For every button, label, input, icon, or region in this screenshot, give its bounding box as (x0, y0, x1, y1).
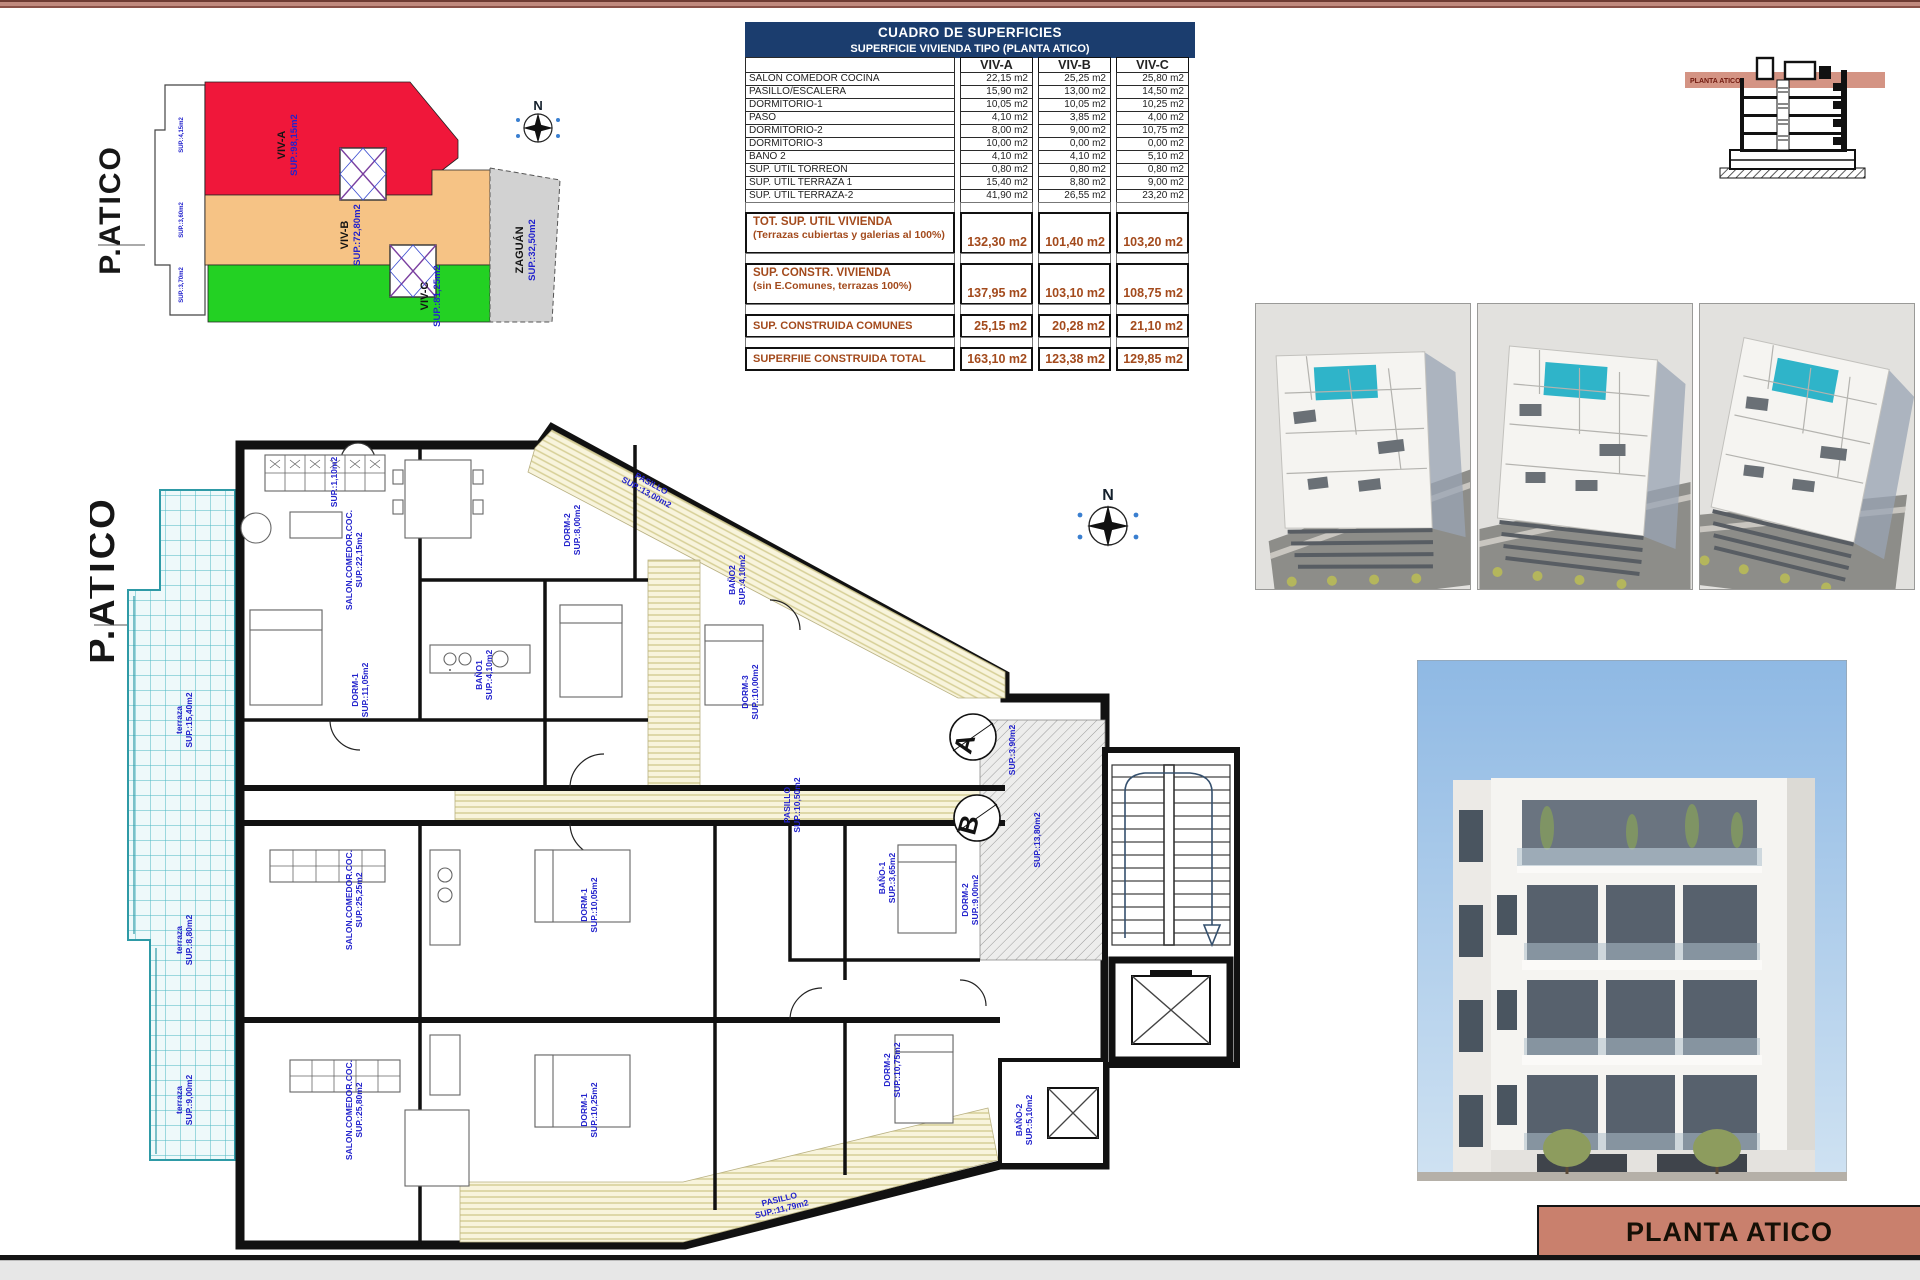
key-compass-icon: N (516, 98, 560, 143)
plan-compass-icon: N (1078, 487, 1139, 547)
table-row: SUP. ÚTIL TERRAZA 115,40 m28,80 m29,00 m… (745, 176, 1195, 190)
table-row: PASO4,10 m23,85 m24,00 m2 (745, 111, 1195, 125)
floorplan-title: P.ATICO (90, 496, 123, 663)
surface-table: CUADRO DE SUPERFICIES SUPERFICIE VIVIEND… (745, 22, 1195, 371)
svg-text:VIV-A: VIV-A (276, 131, 288, 160)
key-edge-label: SUP.:3,60m2 (179, 202, 185, 238)
key-plan-title: P.ATICO (94, 145, 127, 275)
key-edge-label: SUP.:3,70m2 (179, 267, 185, 303)
svg-text:SUP.:98,15m2: SUP.:98,15m2 (289, 114, 300, 176)
aerial-render-viv-c (1699, 303, 1915, 590)
title-block: PLANTA ATICO (1537, 1205, 1920, 1259)
table-row: SALON COMEDOR COCINA22,15 m225,25 m225,8… (745, 72, 1195, 86)
key-zone-viv-c (208, 265, 490, 322)
key-edge-label: SUP.:4,15m2 (179, 117, 185, 153)
key-elevator-1 (340, 148, 386, 200)
svg-text:ZAGUÁN: ZAGUÁN (513, 226, 526, 273)
table-row: PASILLO/ESCALERA15,90 m213,00 m214,50 m2 (745, 85, 1195, 99)
table-row: DORMITORIO-110,05 m210,05 m210,25 m2 (745, 98, 1195, 112)
table-subtitle: SUPERFICIE VIVIENDA TIPO (PLANTA ATICO) (745, 42, 1195, 58)
page-top-trim (0, 0, 1920, 8)
table-row: SUP. ÚTIL TORREÓN0,80 m20,80 m20,80 m2 (745, 163, 1195, 177)
atico-band-label: PLANTA ATICO (1690, 78, 1741, 85)
aerial-render-viv-a (1255, 303, 1471, 590)
pasillo-band-middle (455, 788, 1005, 823)
terrace-strip-vertical (648, 560, 700, 788)
total-row: SUP. CONSTRUIDA COMUNES25,15 m220,28 m22… (745, 314, 1195, 338)
page-bottom-margin (0, 1260, 1920, 1280)
stair-core (1105, 750, 1237, 1065)
table-row: BAÑO 24,10 m24,10 m25,10 m2 (745, 150, 1195, 164)
svg-text:SUP.:81,25m2: SUP.:81,25m2 (432, 265, 443, 327)
total-row: SUPERFIIE CONSTRUIDA TOTAL163,10 m2123,3… (745, 347, 1195, 371)
room-label: SUP.:1,10m2 (329, 457, 339, 508)
total-row: SUP. CONSTR. VIVIENDA(sin E.Comunes, ter… (745, 263, 1195, 305)
svg-text:N: N (533, 98, 542, 113)
table-title: CUADRO DE SUPERFICIES (745, 22, 1195, 42)
table-row: DORMITORIO-310,00 m20,00 m20,00 m2 (745, 137, 1195, 151)
floorplan-drawing: P.ATICO (90, 420, 1260, 1250)
key-plan-diagram: P.ATICO N VIV-ASUP.:98,15m2VIV-BS (90, 40, 610, 340)
side-wing (1453, 780, 1491, 1181)
table-row: SUP. ÚTIL TERRAZA-241,90 m226,55 m223,20… (745, 189, 1195, 203)
svg-text:VIV-B: VIV-B (339, 221, 351, 250)
aerial-render-viv-b (1477, 303, 1693, 590)
total-row: TOT. SUP. UTIL VIVIENDA(Terrazas cubiert… (745, 212, 1195, 254)
table-body: VIV-AVIV-BVIV-CSALON COMEDOR COCINA22,15… (745, 57, 1195, 371)
svg-text:VIV-C: VIV-C (419, 282, 431, 311)
key-zone-label-zaguan: ZAGUÁNSUP.:32,50m2 (513, 219, 538, 281)
room-label: SUP.:13,80m2 (1032, 812, 1042, 867)
sheet-title: PLANTA ATICO (1626, 1217, 1833, 1248)
svg-text:N: N (1102, 487, 1114, 504)
room-label: SUP.:3,90m2 (1007, 725, 1017, 776)
section-thumbnail: PLANTA ATICO (1685, 50, 1885, 180)
svg-text:SUP.:32,50m2: SUP.:32,50m2 (527, 219, 538, 281)
table-row: DORMITORIO-28,00 m29,00 m210,75 m2 (745, 124, 1195, 138)
zaguan-landing (980, 720, 1105, 960)
column-header-row: VIV-AVIV-BVIV-C (745, 57, 1195, 73)
svg-text:SUP.:72,80m2: SUP.:72,80m2 (352, 204, 363, 266)
tiled-terrace (128, 490, 235, 1160)
key-zone-viv-a (205, 82, 458, 195)
plan-sheet: P.ATICO N VIV-ASUP.:98,15m2VIV-BS (0, 0, 1920, 1280)
facade-floors (1497, 885, 1762, 1160)
facade-render (1417, 660, 1847, 1181)
